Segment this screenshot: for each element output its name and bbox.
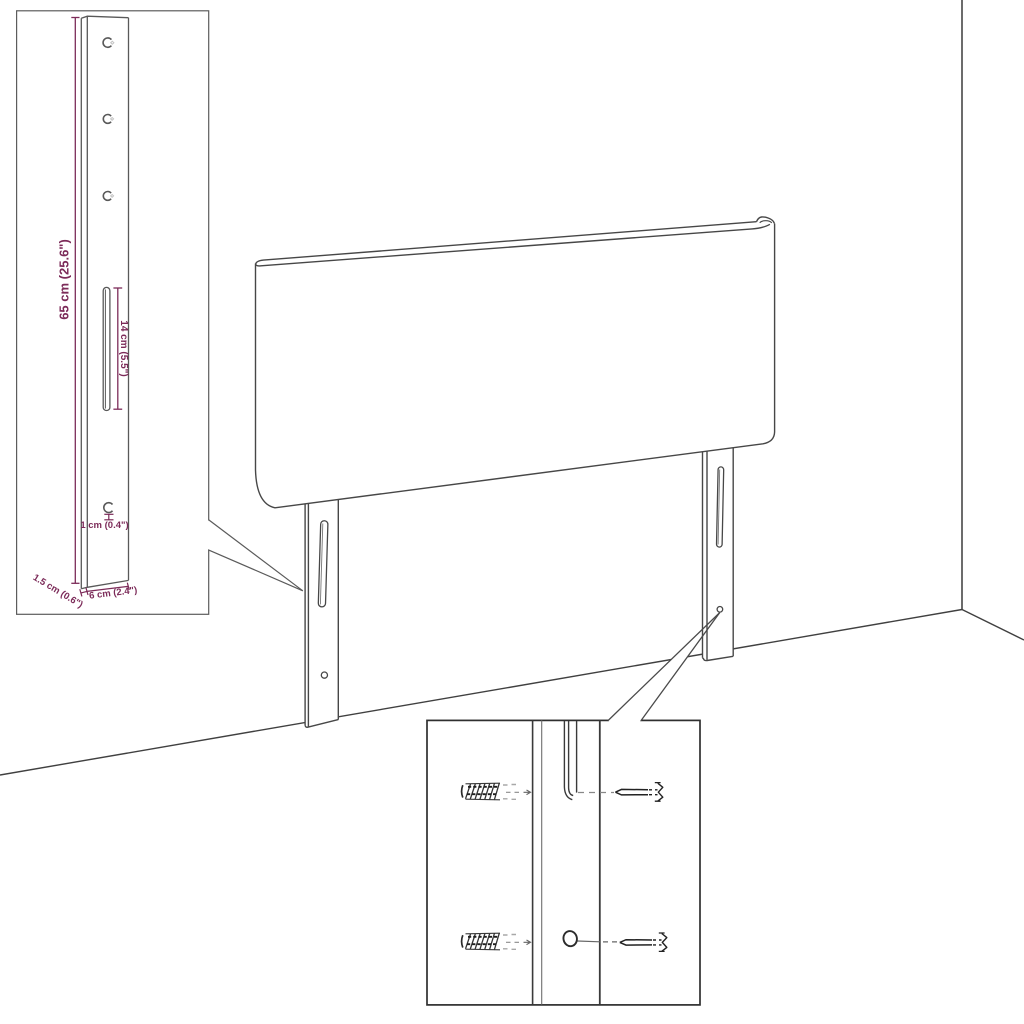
svg-text:1 cm (0.4"): 1 cm (0.4") bbox=[80, 520, 128, 531]
svg-text:65 cm (25.6"): 65 cm (25.6") bbox=[56, 239, 71, 320]
svg-text:14 cm (5.5"): 14 cm (5.5") bbox=[118, 320, 129, 376]
